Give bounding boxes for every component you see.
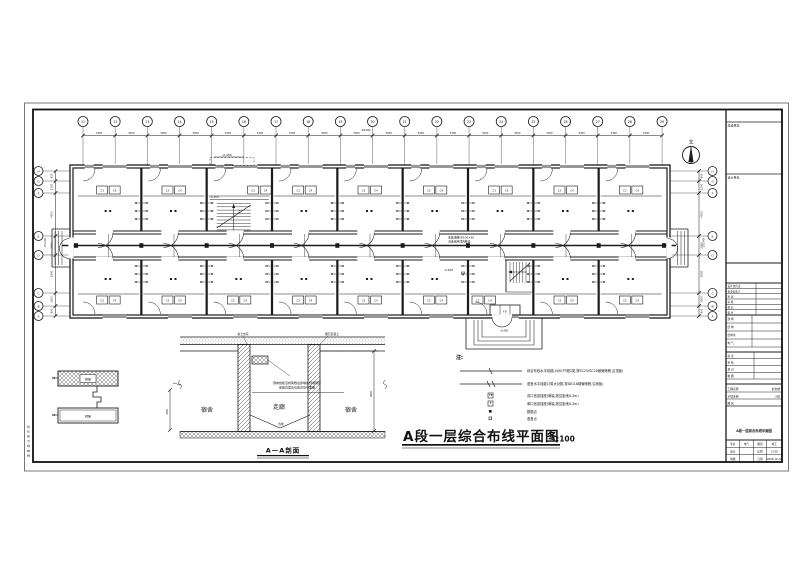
svg-text:2000: 2000 xyxy=(50,242,54,249)
svg-text:结 构: 结 构 xyxy=(728,325,735,329)
svg-text:C4: C4 xyxy=(244,299,248,303)
svg-text:C4: C4 xyxy=(570,299,574,303)
svg-text:C4: C4 xyxy=(264,189,268,193)
svg-text:29: 29 xyxy=(660,120,664,124)
svg-text:E: E xyxy=(712,234,714,238)
svg-text:1200: 1200 xyxy=(700,183,704,190)
svg-text:A段: A段 xyxy=(775,395,780,399)
svg-text:12: 12 xyxy=(113,120,117,124)
svg-text:3300: 3300 xyxy=(643,131,650,135)
svg-text:设计: 设计 xyxy=(730,449,736,453)
svg-text:3300: 3300 xyxy=(546,131,553,135)
svg-text:语音点: 语音点 xyxy=(527,416,538,421)
svg-text:C: C xyxy=(37,291,39,295)
svg-text:17: 17 xyxy=(274,120,278,124)
margin-text: 建筑设计研究院 xyxy=(27,423,31,457)
svg-text:900: 900 xyxy=(369,391,373,397)
building: C3C4C3C4C3C4C3C4C3C4C3C4C3C4C3C4C3C4C3C4… xyxy=(52,164,688,349)
svg-text:11: 11 xyxy=(81,120,85,124)
svg-text:C4: C4 xyxy=(309,189,313,193)
svg-text:图别: 图别 xyxy=(757,442,763,446)
svg-text:电气: 电气 xyxy=(744,442,750,446)
room-module: C3C4C3C4 xyxy=(331,164,400,320)
svg-text:C3: C3 xyxy=(558,299,562,303)
svg-text:3300: 3300 xyxy=(257,131,264,135)
svg-text:3300: 3300 xyxy=(160,131,167,135)
svg-text:给排水: 给排水 xyxy=(728,333,736,337)
svg-text:13: 13 xyxy=(145,120,149,124)
svg-text:C4: C4 xyxy=(636,299,640,303)
svg-text:3300: 3300 xyxy=(418,131,425,135)
svg-text:审 核: 审 核 xyxy=(728,300,734,304)
svg-text:弱电线缆沿桥架敷设穿墙处预埋钢管: 弱电线缆沿桥架敷设穿墙处预埋钢管 xyxy=(273,380,321,385)
svg-text:C3: C3 xyxy=(492,189,496,193)
svg-text:3300: 3300 xyxy=(482,131,489,135)
svg-text:1:100: 1:100 xyxy=(771,449,779,453)
corridor-tray xyxy=(62,234,676,257)
title-block: 建设单位设计单位设计总负责专业负责人审 定审 核校 对设 计建 筑结 构给排水电… xyxy=(726,122,782,462)
section-detail: 弱电线缆沿桥架敷设穿墙处预埋钢管安装高度及位置详见平面图找坡宿舍走廊宿舍素土夯实… xyxy=(178,332,387,438)
svg-text:900: 900 xyxy=(50,173,54,178)
svg-text:C3: C3 xyxy=(231,299,235,303)
sheet-frame xyxy=(25,103,789,471)
room-module: C3C4C3C4 xyxy=(592,164,661,320)
svg-text:3300: 3300 xyxy=(289,131,296,135)
svg-text:C4: C4 xyxy=(178,189,182,193)
svg-text:15140: 15140 xyxy=(702,238,706,248)
svg-text:双口信息插座(暗装,底边距地0.3m): 双口信息插座(暗装,底边距地0.3m) xyxy=(527,393,579,398)
svg-text:3300: 3300 xyxy=(385,131,392,135)
svg-text:E: E xyxy=(38,234,40,238)
svg-text:B: B xyxy=(37,304,39,308)
svg-text:B: B xyxy=(711,304,713,308)
svg-text:18: 18 xyxy=(306,120,310,124)
svg-text:3900: 3900 xyxy=(50,270,54,277)
svg-text:数据点: 数据点 xyxy=(527,409,538,414)
svg-text:C3: C3 xyxy=(166,299,170,303)
cad-drawing: A段一层综合布线平面图 1:100 A—A剖面 注: 北 建筑设计研究院 111… xyxy=(0,0,800,567)
svg-text:1300: 1300 xyxy=(50,296,54,303)
svg-text:C3: C3 xyxy=(558,189,562,193)
svg-text:16: 16 xyxy=(242,120,246,124)
svg-text:-0.450: -0.450 xyxy=(222,153,232,157)
tray-detail: 桥架桥架300 xyxy=(53,371,181,432)
svg-text:C4: C4 xyxy=(636,189,640,193)
svg-text:校 对: 校 对 xyxy=(728,305,734,309)
svg-text:4500: 4500 xyxy=(50,211,54,218)
svg-text:3300: 3300 xyxy=(321,131,328,135)
svg-text:3300: 3300 xyxy=(611,131,618,135)
svg-text:走廊: 走廊 xyxy=(273,403,285,411)
svg-text:专业: 专业 xyxy=(730,442,736,446)
svg-text:专业负责人: 专业负责人 xyxy=(728,289,741,293)
svg-text:3300: 3300 xyxy=(192,131,199,135)
svg-text:沿走廊吊顶内敷设: 沿走廊吊顶内敷设 xyxy=(448,239,471,243)
svg-text:900: 900 xyxy=(700,308,704,313)
svg-text:19: 19 xyxy=(338,120,342,124)
svg-text:3300: 3300 xyxy=(578,131,585,135)
svg-text:3300: 3300 xyxy=(514,131,521,135)
svg-text:审 定: 审 定 xyxy=(728,354,735,358)
svg-text:审 核: 审 核 xyxy=(728,361,735,365)
svg-text:设计单位: 设计单位 xyxy=(728,175,740,180)
svg-text:C3: C3 xyxy=(100,299,104,303)
svg-text:3900: 3900 xyxy=(700,270,704,277)
svg-text:2006.12.22: 2006.12.22 xyxy=(767,457,782,461)
svg-text:C4: C4 xyxy=(374,189,378,193)
room-module: C3C4C3C4 xyxy=(527,164,596,320)
svg-text:3300: 3300 xyxy=(225,131,232,135)
svg-text:C3: C3 xyxy=(362,189,366,193)
svg-text:59440: 59440 xyxy=(362,128,371,132)
svg-text:4500: 4500 xyxy=(700,211,704,218)
svg-text:C3: C3 xyxy=(296,189,300,193)
north-label: 北 xyxy=(689,139,694,146)
svg-text:3300: 3300 xyxy=(128,131,135,135)
svg-text:3300: 3300 xyxy=(450,131,457,135)
svg-text:14: 14 xyxy=(177,120,181,124)
svg-text:27: 27 xyxy=(596,120,600,124)
svg-text:找坡: 找坡 xyxy=(278,422,284,426)
svg-text:设 计: 设 计 xyxy=(728,311,734,315)
svg-text:23: 23 xyxy=(467,120,471,124)
svg-text:C3: C3 xyxy=(296,299,300,303)
svg-text:建 筑: 建 筑 xyxy=(728,317,735,321)
svg-text:-0.450: -0.450 xyxy=(500,329,509,333)
svg-text:宿舍: 宿舍 xyxy=(345,406,357,414)
svg-text:26: 26 xyxy=(564,120,568,124)
svg-text:FD: FD xyxy=(503,309,507,313)
svg-text:C3: C3 xyxy=(623,189,627,193)
svg-text:细石混凝土: 细石混凝土 xyxy=(325,332,339,336)
svg-text:C4: C4 xyxy=(505,189,509,193)
svg-text:C: C xyxy=(711,291,713,295)
room-module: C3C4C3C4 xyxy=(462,164,531,320)
svg-text:1200: 1200 xyxy=(50,183,54,190)
svg-text:21: 21 xyxy=(403,120,407,124)
svg-text:1300: 1300 xyxy=(700,296,704,303)
main-title-scale: 1:100 xyxy=(551,435,575,444)
svg-text:C3: C3 xyxy=(427,189,431,193)
svg-text:桥架: 桥架 xyxy=(85,413,91,418)
svg-text:子项名称: 子项名称 xyxy=(728,395,739,399)
svg-text:-0.450: -0.450 xyxy=(444,268,453,272)
svg-text:素土夯实: 素土夯实 xyxy=(237,332,248,336)
svg-text:C4: C4 xyxy=(178,299,182,303)
svg-text:宿舍: 宿舍 xyxy=(201,406,213,414)
svg-text:300: 300 xyxy=(165,409,169,415)
svg-text:C3: C3 xyxy=(623,299,627,303)
svg-text:设计总负责: 设计总负责 xyxy=(728,284,741,288)
room-module: C3C4C3C4 xyxy=(266,164,335,320)
svg-text:综合布线水平线缆(4对UTP超5类,穿SC25/SC20钢管: 综合布线水平线缆(4对UTP超5类,穿SC25/SC20钢管暗敷,沿顶板) xyxy=(527,368,623,373)
svg-text:F: F xyxy=(712,191,714,195)
svg-text:建设单位: 建设单位 xyxy=(728,123,740,128)
svg-text:审 定: 审 定 xyxy=(728,295,734,299)
svg-text:C3: C3 xyxy=(362,299,366,303)
svg-text:15140: 15140 xyxy=(43,238,47,248)
svg-text:3300: 3300 xyxy=(96,131,103,135)
svg-text:25: 25 xyxy=(531,120,535,124)
grid-top: 1112131415161718192021222324252627282933… xyxy=(78,117,667,165)
svg-text:15: 15 xyxy=(210,120,214,124)
svg-text:C4: C4 xyxy=(440,299,444,303)
svg-text:900: 900 xyxy=(50,308,54,313)
svg-text:C3: C3 xyxy=(476,299,480,303)
svg-text:校 对: 校 对 xyxy=(728,367,735,371)
room-module: C3C4C3C4 xyxy=(135,164,204,320)
svg-text:工程名称: 工程名称 xyxy=(728,387,739,391)
svg-text:C4: C4 xyxy=(309,299,313,303)
svg-text:C4: C4 xyxy=(570,189,574,193)
section-title: A—A剖面 xyxy=(266,446,301,455)
svg-text:H: H xyxy=(37,169,39,173)
svg-text:24: 24 xyxy=(499,120,503,124)
section-title-underline xyxy=(257,455,309,456)
main-title: A段一层综合布线平面图 xyxy=(403,428,559,445)
svg-text:施工: 施工 xyxy=(772,442,778,446)
svg-text:C4: C4 xyxy=(374,299,378,303)
stair-bottom: FD-0.450 xyxy=(444,260,532,327)
svg-text:安装高度及位置详见平面图: 安装高度及位置详见平面图 xyxy=(279,385,315,390)
svg-text:C3: C3 xyxy=(166,189,170,193)
svg-text:20: 20 xyxy=(370,120,374,124)
svg-text:-0.450: -0.450 xyxy=(210,195,219,199)
cad-sheet: A段一层综合布线平面图 1:100 A—A剖面 注: 北 建筑设计研究院 111… xyxy=(0,0,800,567)
svg-text:制图: 制图 xyxy=(730,457,736,461)
svg-text:图 名: 图 名 xyxy=(728,402,735,406)
svg-text:A段一层综合布线平面图: A段一层综合布线平面图 xyxy=(736,428,772,433)
main-title-underline xyxy=(402,444,560,446)
svg-text:C3: C3 xyxy=(427,299,431,303)
svg-text:28: 28 xyxy=(628,120,632,124)
svg-text:H: H xyxy=(711,169,713,173)
svg-text:制 图: 制 图 xyxy=(728,374,735,378)
svg-text:C4: C4 xyxy=(488,299,492,303)
legend-title: 注: xyxy=(456,354,463,361)
svg-text:C3: C3 xyxy=(100,189,104,193)
svg-text:C4: C4 xyxy=(440,189,444,193)
stair-top: 上-0.450 xyxy=(210,195,269,230)
svg-text:宿舍楼: 宿舍楼 xyxy=(772,387,781,391)
svg-text:单口信息插座(暗装,底边距地0.3m): 单口信息插座(暗装,底边距地0.3m) xyxy=(527,401,579,406)
svg-text:3300: 3300 xyxy=(353,131,360,135)
svg-text:桥架: 桥架 xyxy=(85,376,91,381)
north-arrow xyxy=(683,147,700,164)
svg-text:语音水平线缆(3类大对数,穿JDG16钢管暗敷,沿地板): 语音水平线缆(3类大对数,穿JDG16钢管暗敷,沿地板) xyxy=(527,381,603,386)
svg-text:F: F xyxy=(38,191,40,195)
room-module: C3C4C3C4 xyxy=(200,164,271,320)
svg-text:比例: 比例 xyxy=(757,449,763,453)
svg-text:22: 22 xyxy=(435,120,439,124)
svg-text:日期: 日期 xyxy=(757,457,763,461)
svg-text:900: 900 xyxy=(700,173,704,178)
svg-text:电 气: 电 气 xyxy=(728,341,735,345)
svg-text:C4: C4 xyxy=(113,299,117,303)
svg-text:C4: C4 xyxy=(113,189,117,193)
svg-text:C3: C3 xyxy=(251,189,255,193)
legend: 综合布线水平线缆(4对UTP超5类,穿SC25/SC20钢管暗敷,沿顶板)语音水… xyxy=(460,368,623,421)
svg-text:上: 上 xyxy=(238,208,241,213)
